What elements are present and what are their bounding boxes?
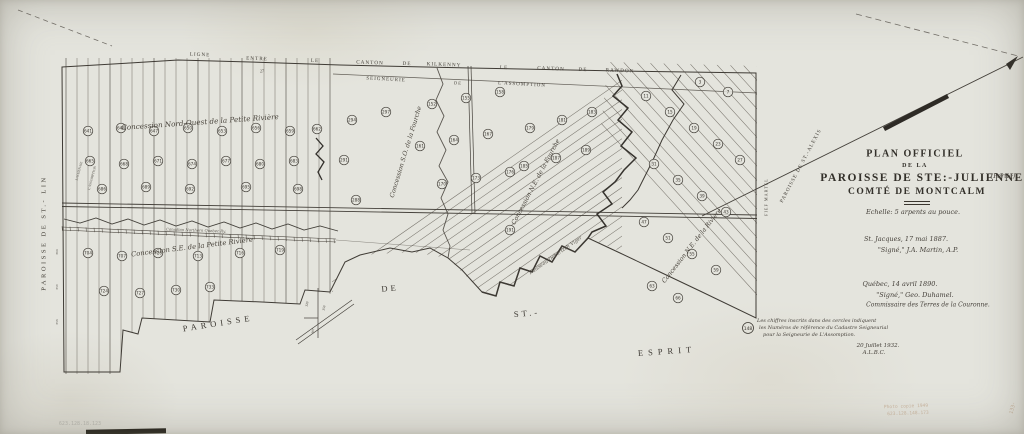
certification-2-place-date: Québec, 14 avril 1890.	[863, 280, 938, 288]
lot-marker: 170	[437, 179, 447, 189]
lot-marker: 173	[471, 173, 481, 183]
canton-line-word-kilkenny: KILKENNY	[427, 61, 462, 68]
lot-marker: 181	[557, 115, 567, 125]
lot-marker: 39	[697, 191, 707, 201]
lot-marker: 716	[235, 248, 245, 258]
copy-date: 20 Juillet 1932.	[857, 343, 900, 349]
lot-marker: 719	[275, 245, 285, 255]
canton-line-word-de1: DE	[402, 61, 411, 67]
lot-marker: 15	[665, 107, 675, 117]
lot-marker: 11	[641, 91, 651, 101]
lot-marker: 653	[217, 126, 227, 136]
svg-text:179: 179	[526, 126, 534, 131]
parish-boundary	[62, 60, 756, 372]
lot-marker: 680	[255, 159, 265, 169]
lot-marker: 288	[351, 195, 361, 205]
canton-line-word-de2: DE	[578, 67, 587, 73]
lot-marker: 23	[713, 139, 723, 149]
svg-text:170: 170	[438, 182, 446, 187]
scale-note: Echelle: 5 arpents au pouce.	[866, 208, 960, 216]
svg-text:653: 653	[218, 129, 226, 134]
svg-text:713: 713	[194, 254, 202, 259]
svg-text:164: 164	[450, 138, 458, 143]
svg-text:148: 148	[744, 326, 753, 332]
lot-marker: 164	[449, 135, 459, 145]
svg-text:730: 730	[172, 288, 180, 293]
main-road	[62, 203, 757, 219]
svg-text:695: 695	[242, 185, 250, 190]
svg-text:288: 288	[352, 198, 360, 203]
note-line-1: Les chiffres inscrits dans des cercles i…	[757, 318, 876, 324]
svg-text:189: 189	[582, 148, 590, 153]
svg-text:7: 7	[727, 90, 730, 95]
corner-dashed-line-left	[18, 10, 112, 46]
lot-marker: 665	[85, 156, 95, 166]
lot-marker: 297	[381, 107, 391, 117]
lot-marker: 35	[673, 175, 683, 185]
lot-marker: 668	[119, 159, 129, 169]
title-line-2: DE LA	[902, 163, 928, 169]
svg-text:671: 671	[154, 159, 162, 164]
lot-marker: 674	[187, 159, 197, 169]
svg-text:677: 677	[222, 159, 230, 164]
svg-text:704: 704	[84, 251, 92, 256]
lot-marker: 152	[427, 99, 437, 109]
lot-marker: 683	[289, 156, 299, 166]
lot-marker: 189	[581, 145, 591, 155]
title-rule	[904, 201, 930, 205]
svg-text:161: 161	[416, 144, 424, 149]
lot-marker: 692	[185, 184, 195, 194]
svg-text:641: 641	[84, 129, 92, 134]
lot-marker: 730	[171, 285, 181, 295]
svg-text:66: 66	[675, 296, 681, 301]
svg-text:176: 176	[506, 170, 514, 175]
title-partie: (Partie)	[991, 172, 1016, 180]
svg-text:683: 683	[290, 159, 298, 164]
lot-marker: 291	[339, 155, 349, 165]
svg-text:668: 668	[120, 162, 128, 167]
canton-line-word-le2: LE	[500, 65, 509, 71]
certification-1-signature: "Signé," J.A. Martin, A.P.	[878, 246, 958, 254]
lot-marker: 176	[505, 167, 515, 177]
svg-text:727: 727	[136, 291, 144, 296]
svg-text:63: 63	[649, 284, 655, 289]
lot-marker: 689	[141, 182, 151, 192]
svg-text:43: 43	[723, 210, 729, 215]
seigneurie-de: DE	[454, 80, 462, 85]
lot-marker: 641	[83, 126, 93, 136]
svg-text:152: 152	[428, 102, 436, 107]
lot-marker: 704	[83, 248, 93, 258]
certification-2-title: Commissaire des Terres de la Couronne.	[866, 302, 990, 309]
note-line-3: pour la Seigneurie de L'Assomption.	[763, 332, 855, 338]
svg-text:39: 39	[699, 194, 705, 199]
middle-stream	[436, 68, 450, 258]
lot-marker: 727	[135, 288, 145, 298]
svg-text:698: 698	[294, 187, 302, 192]
edge-number-858: 858	[55, 319, 59, 324]
lot-number-27: 27	[260, 69, 264, 74]
lot-marker: 3	[695, 77, 705, 87]
lot-marker: 31	[649, 159, 659, 169]
svg-text:707: 707	[118, 254, 126, 259]
lot-marker: 155	[461, 93, 471, 103]
corner-dashed-line-right	[856, 14, 1018, 56]
edge-number-860: 860	[55, 249, 59, 254]
lot-marker: 167	[483, 129, 493, 139]
svg-text:665: 665	[86, 159, 94, 164]
lot-marker: 659	[285, 126, 295, 136]
paroisse-st-esprit-word-de: DE	[381, 282, 399, 293]
svg-text:173: 173	[472, 176, 480, 181]
svg-text:689: 689	[142, 185, 150, 190]
svg-text:47: 47	[641, 220, 647, 225]
lot-marker: 27	[735, 155, 745, 165]
lot-marker: 695	[241, 182, 251, 192]
lot-marker: 191	[505, 225, 515, 235]
title-line-1: PLAN OFFICIEL	[866, 149, 964, 160]
lot-marker: 161	[415, 141, 425, 151]
svg-text:158: 158	[496, 90, 504, 95]
lot-marker: 179	[525, 123, 535, 133]
svg-text:297: 297	[382, 110, 390, 115]
svg-text:185: 185	[520, 164, 528, 169]
lot-marker: 294	[347, 115, 357, 125]
small-creek	[316, 138, 324, 180]
svg-text:692: 692	[186, 187, 194, 192]
svg-text:27: 27	[737, 158, 743, 163]
svg-text:11: 11	[643, 94, 649, 99]
svg-text:291: 291	[340, 158, 348, 163]
map-sheet: 6416446476506536566596626656686716746776…	[0, 0, 1024, 434]
svg-text:733: 733	[206, 285, 214, 290]
lot-marker: 19	[689, 123, 699, 133]
edge-number-859: 859	[55, 284, 59, 289]
svg-text:183: 183	[588, 110, 596, 115]
svg-text:15: 15	[667, 110, 673, 115]
svg-text:716: 716	[236, 251, 244, 256]
svg-text:167: 167	[484, 132, 492, 137]
lot-marker: 47	[639, 217, 649, 227]
svg-text:674: 674	[188, 162, 196, 167]
lot-marker: 51	[663, 233, 673, 243]
svg-text:31: 31	[651, 162, 657, 167]
lot-marker: 713	[193, 251, 203, 261]
lot-marker: 677	[221, 156, 231, 166]
lot-marker: 63	[647, 281, 657, 291]
lot-marker: 686	[97, 184, 107, 194]
lot-marker: 59	[711, 265, 721, 275]
canton-line-word-canton2: CANTON	[537, 66, 565, 73]
lot-marker: 707	[117, 251, 127, 261]
lot-marker: 656	[251, 123, 261, 133]
fief-martel-label: FIEF MARTEL	[764, 178, 769, 216]
lot-marker: 185	[519, 161, 529, 171]
canton-line-word-canton1: CANTON	[356, 60, 384, 67]
svg-text:719: 719	[276, 248, 284, 253]
certification-1-place-date: St. Jacques, 17 mai 1887.	[864, 235, 948, 243]
svg-text:659: 659	[286, 129, 294, 134]
svg-text:656: 656	[252, 126, 260, 131]
svg-text:51: 51	[665, 236, 671, 241]
river-branch	[622, 75, 684, 208]
svg-text:3: 3	[699, 80, 702, 85]
svg-text:191: 191	[506, 228, 514, 233]
lot-marker: 698	[293, 184, 303, 194]
svg-text:294: 294	[348, 118, 356, 123]
svg-text:59: 59	[713, 268, 719, 273]
lot-marker: 66	[673, 293, 683, 303]
lot-marker: 7	[723, 87, 733, 97]
svg-text:686: 686	[98, 187, 106, 192]
certification-2-signature: "Signé," Geo. Duhamel.	[876, 291, 953, 299]
svg-text:23: 23	[715, 142, 721, 147]
svg-text:662: 662	[313, 127, 321, 132]
svg-text:181: 181	[558, 118, 566, 123]
title-line-4: COMTÉ DE MONTCALM	[848, 187, 986, 197]
canton-line-word-le1: LE	[311, 58, 320, 64]
archive-stamp-left: 623.128.18.123	[59, 421, 101, 427]
middle-road	[468, 66, 475, 214]
lot-marker: 158	[495, 87, 505, 97]
lot-marker: 662	[312, 124, 322, 134]
note-line-2: les Numéros de référence du Cadastre Sei…	[759, 325, 888, 331]
lot-marker: 183	[587, 107, 597, 117]
road-junction-sketch	[296, 288, 354, 344]
lot-marker: 671	[153, 156, 163, 166]
note-reference-circle: 148	[743, 323, 754, 334]
canton-line-word-rawdon: RAWDON	[605, 67, 634, 74]
svg-text:19: 19	[691, 126, 697, 131]
svg-text:155: 155	[462, 96, 470, 101]
canton-line-word-entre: ENTRE	[246, 56, 268, 63]
lot-marker: 733	[205, 282, 215, 292]
svg-text:680: 680	[256, 162, 264, 167]
lot-marker: 724	[99, 286, 109, 296]
canton-line-word-ligne: LIGNE	[190, 52, 211, 59]
paroisse-st-lin-label: PAROISSE DE ST.- LIN	[41, 175, 48, 290]
scan-edge-mark	[86, 428, 166, 434]
copy-initials: A.L.B.C.	[863, 350, 886, 356]
svg-text:35: 35	[675, 178, 681, 183]
svg-text:724: 724	[100, 289, 108, 294]
